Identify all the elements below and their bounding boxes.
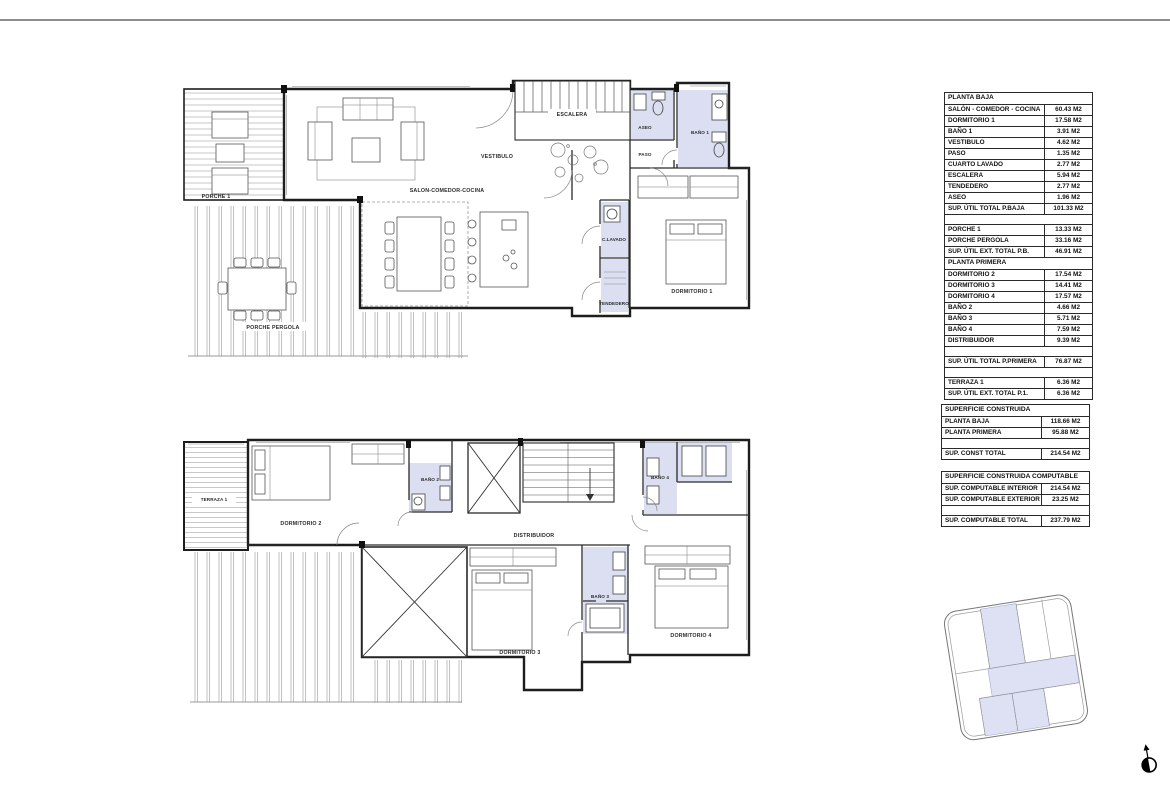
area-table-planta-primera: PLANTA PRIMERA DORMITORIO 217.54 M2 DORM… [944,257,1093,400]
bed-dormitorio2 [252,444,404,500]
room-label-aseo: ASEO [638,125,652,130]
room-label-dormitorio3: DORMITORIO 3 [499,650,540,656]
table-row: DORMITORIO 117.58 M2 [945,115,1092,126]
pergola-area-2 [362,312,468,358]
area-table-superficie-computable: SUPERFICIE CONSTRUIDA COMPUTABLE SUP. CO… [941,471,1090,527]
table-total-row: SUP. COMPUTABLE TOTAL237.79 M2 [942,515,1089,526]
floor-plan-planta-baja: PORCHE 1 SALON-COMEDOR-COCINA VESTIBULO … [184,81,749,358]
living-room-furniture [308,98,424,180]
table-row: BAÑO 24.66 M2 [945,302,1092,313]
room-label-vestibulo: VESTIBULO [481,154,513,160]
table-row: TENDEDERO2.77 M2 [945,181,1092,192]
double-height-void [362,547,467,657]
room-label-salon: SALON-COMEDOR-COCINA [410,188,485,194]
decorative-circles [551,143,608,182]
spacer-row [945,346,1092,356]
spacer-row [945,214,1092,224]
bed-dormitorio4 [645,546,730,628]
table-row: DORMITORIO 314.41 M2 [945,280,1092,291]
table-row: DISTRIBUIDOR9.39 M2 [945,335,1092,346]
room-label-escalera: ESCALERA [557,112,588,118]
room-label-dormitorio2: DORMITORIO 2 [280,521,321,527]
area-table-planta-baja: PLANTA BAJA SALÓN - COMEDOR - COCINA60.4… [944,92,1093,258]
spacer-row [942,505,1089,515]
table-row: SUP. COMPUTABLE INTERIOR214.54 M2 [942,483,1089,494]
table-row: PASO1.35 M2 [945,148,1092,159]
table-row: VESTIBULO4.62 M2 [945,137,1092,148]
room-label-clavado: C.LAVADO [602,237,626,242]
drawing-sheet: { "colors": { "wet_room_fill": "#dbdff1"… [0,0,1170,785]
room-label-dormitorio1: DORMITORIO 1 [671,289,712,295]
dining-table [385,217,454,291]
room-label-bano2: BAÑO 2 [421,476,439,482]
room-label-porche-pergola: PORCHE PERGOLA [246,325,299,331]
table-total-row: SUP. ÚTIL EXT. TOTAL P.B.46.91 M2 [945,246,1092,257]
room-label-tendedero: TENDEDERO [599,301,629,306]
table-row: SALÓN - COMEDOR - COCINA60.43 M2 [945,104,1092,115]
table-title-row: SUPERFICIE CONSTRUIDA [942,405,1089,416]
pergola-below-left [190,552,358,702]
kitchen-island [468,212,528,287]
room-label-porche-1: PORCHE 1 [202,194,231,200]
table-row: BAÑO 35.71 M2 [945,313,1092,324]
room-label-bano1: BAÑO 1 [691,129,709,135]
table-row: BAÑO 47.59 M2 [945,324,1092,335]
table-title-row: PLANTA PRIMERA [945,258,1092,269]
table-total-row: SUP. ÚTIL TOTAL P.PRIMERA76.87 M2 [945,356,1092,367]
site-plan [943,593,1090,741]
table-row: DORMITORIO 217.54 M2 [945,269,1092,280]
spacer-row [945,367,1092,377]
table-total-row: SUP. ÚTIL TOTAL P.BAJA101.33 M2 [945,203,1092,214]
porche-furniture [212,112,248,194]
room-label-terraza1: TERRAZA 1 [201,497,228,502]
bed-dormitorio1 [638,176,738,284]
table-total-row: SUP. ÚTIL EXT. TOTAL P.1.6.36 M2 [945,388,1092,399]
room-label-bano3: BAÑO 3 [591,593,609,599]
area-table-superficie-construida: SUPERFICIE CONSTRUIDA PLANTA BAJA118.66 … [941,404,1090,460]
void-stair-x [468,443,520,513]
table-row: CUARTO LAVADO2.77 M2 [945,159,1092,170]
table-row: ASEO1.96 M2 [945,192,1092,203]
bed-dormitorio3 [470,548,556,650]
floor-plan-planta-primera: TERRAZA 1 DORMITORIO 2 BAÑO 2 DISTRIBUID… [184,438,749,703]
table-row: TERRAZA 16.36 M2 [945,377,1092,388]
table-row: SUP. COMPUTABLE EXTERIOR23.25 M2 [942,494,1089,505]
table-title-row: PLANTA BAJA [945,93,1092,104]
spacer-row [942,438,1089,448]
room-label-bano4: BAÑO 4 [651,474,669,480]
table-total-row: SUP. CONST TOTAL214.54 M2 [942,448,1089,459]
room-label-distribuidor: DISTRIBUIDOR [514,533,555,539]
room-label-paso: PASO [638,152,651,157]
table-row: BAÑO 13.91 M2 [945,126,1092,137]
table-row: ESCALERA5.94 M2 [945,170,1092,181]
table-row: PLANTA BAJA118.66 M2 [942,416,1089,427]
north-arrow-icon [1139,743,1158,773]
table-title-row: SUPERFICIE CONSTRUIDA COMPUTABLE [942,472,1089,483]
table-row: DORMITORIO 417.57 M2 [945,291,1092,302]
pergola-below-center [366,660,462,703]
staircase-primera [523,443,614,502]
room-label-dormitorio4: DORMITORIO 4 [670,633,711,639]
table-row: PORCHE PERGOLA33.16 M2 [945,235,1092,246]
table-row: PLANTA PRIMERA95.88 M2 [942,427,1089,438]
table-row: PORCHE 113.33 M2 [945,224,1092,235]
